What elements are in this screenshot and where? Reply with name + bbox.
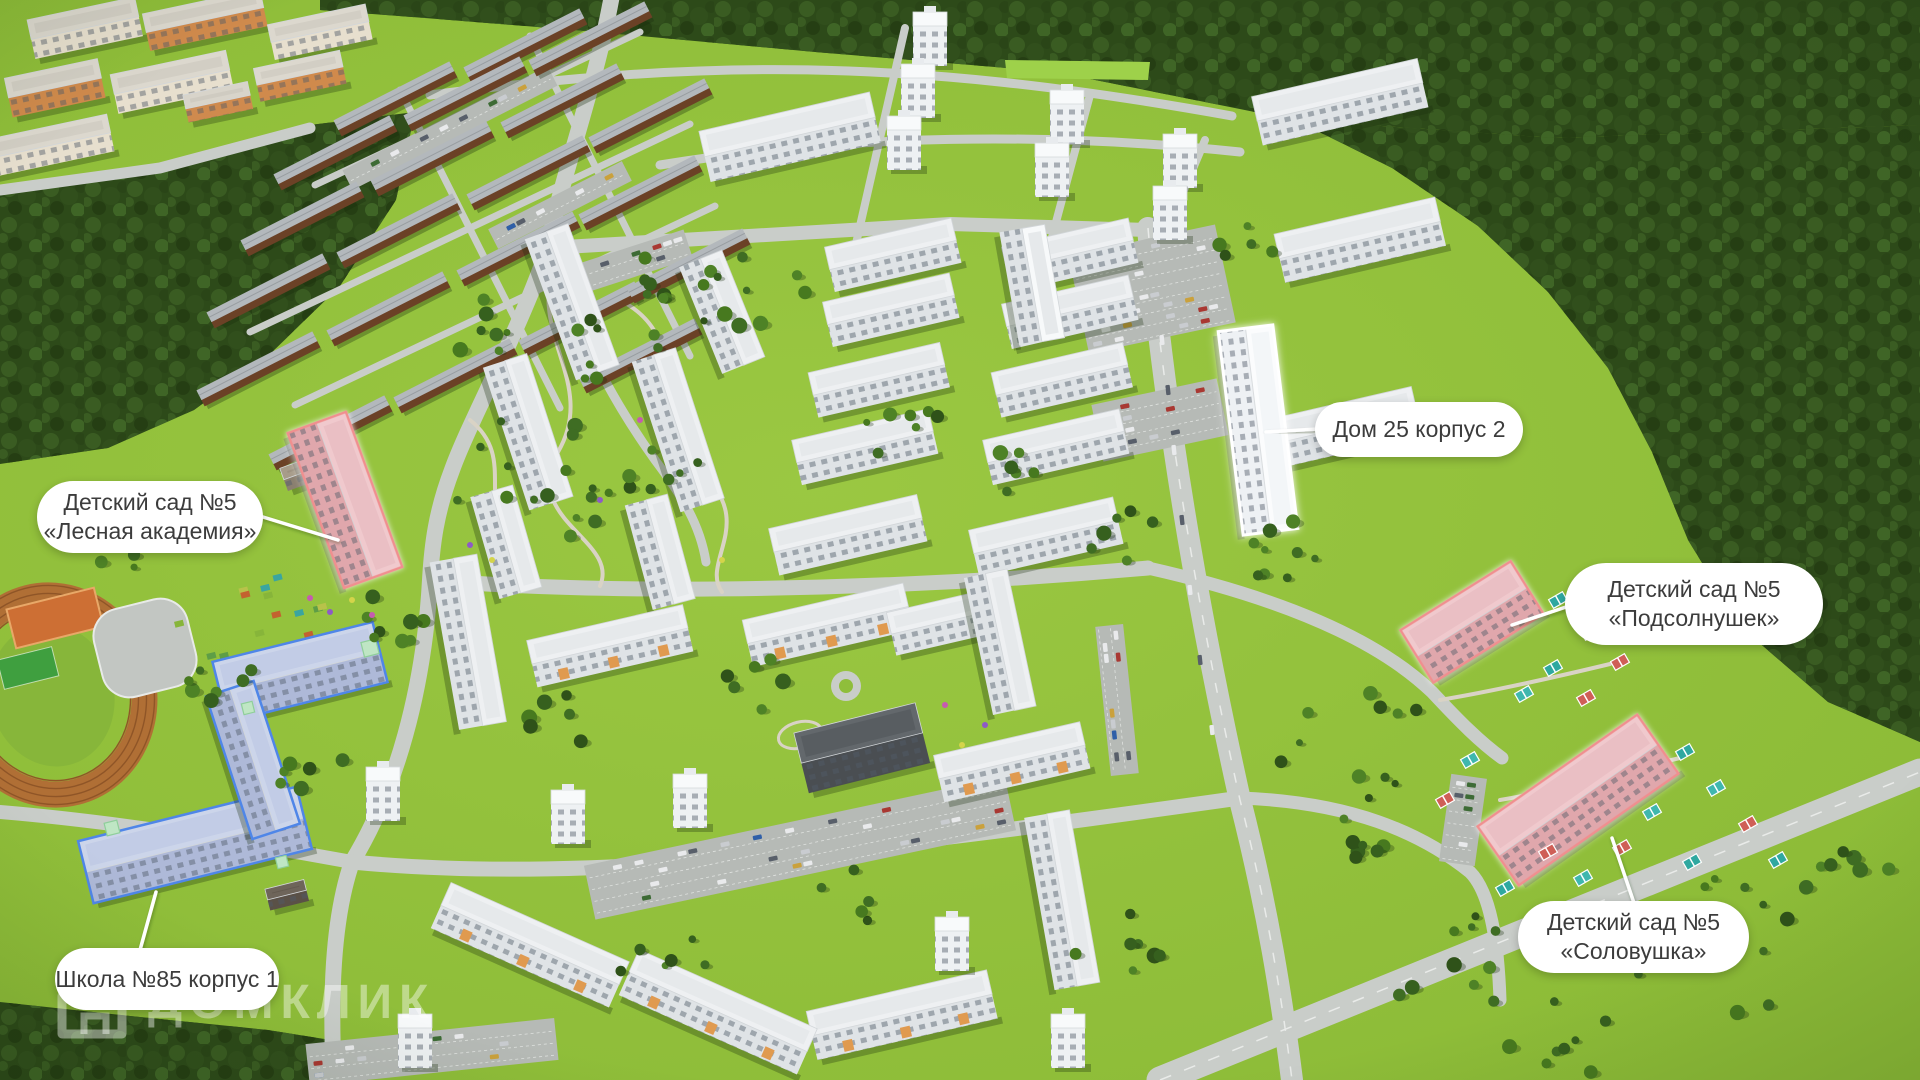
playground-dot <box>942 702 948 708</box>
callout-school-85-korpus-1[interactable]: Школа №85 корпус 1 <box>55 948 279 1010</box>
playground-dot <box>327 609 333 615</box>
callout-kindergarten-podsolnushek[interactable]: Детский сад №5 «Подсолнушек» <box>1565 563 1823 645</box>
playground-dot <box>959 742 965 748</box>
callout-line: Школа №85 корпус 1 <box>55 965 278 994</box>
callout-line: Детский сад №5 <box>63 488 236 517</box>
tower-building <box>366 761 406 825</box>
callout-kindergarten-solovushka[interactable]: Детский сад №5 «Соловушка» <box>1518 901 1749 973</box>
callout-line: «Соловушка» <box>1561 937 1707 966</box>
tower-building <box>935 911 975 975</box>
callout-line: «Лесная академия» <box>44 517 257 546</box>
playground-dot <box>597 497 603 503</box>
masterplan: ДОМКЛИК Детский сад №5 «Лесная академия»… <box>0 0 1920 1080</box>
tower-building <box>1035 137 1075 201</box>
callout-line: Детский сад №5 <box>1607 575 1780 604</box>
callout-kindergarten-lesnaya-akademiya[interactable]: Детский сад №5 «Лесная академия» <box>37 481 263 553</box>
playground-dot <box>489 557 495 563</box>
playground-dot <box>467 542 473 548</box>
playground-dot <box>637 417 643 423</box>
tower-building <box>887 110 927 174</box>
callout-line: Дом 25 корпус 2 <box>1332 415 1505 444</box>
tower-building <box>398 1008 438 1072</box>
playground-dot <box>369 612 375 618</box>
callout-line: Детский сад №5 <box>1547 908 1720 937</box>
tower-building <box>551 784 591 848</box>
playground-dot <box>307 595 313 601</box>
callout-line: «Подсолнушек» <box>1609 604 1780 633</box>
playground-dot <box>982 722 988 728</box>
playground-dot <box>719 557 725 563</box>
tower-building <box>673 768 713 832</box>
tower-building <box>1153 180 1193 244</box>
tower-building <box>1051 1008 1091 1072</box>
callout-dom-25-korpus-2[interactable]: Дом 25 корпус 2 <box>1315 402 1523 457</box>
playground-dot <box>349 597 355 603</box>
